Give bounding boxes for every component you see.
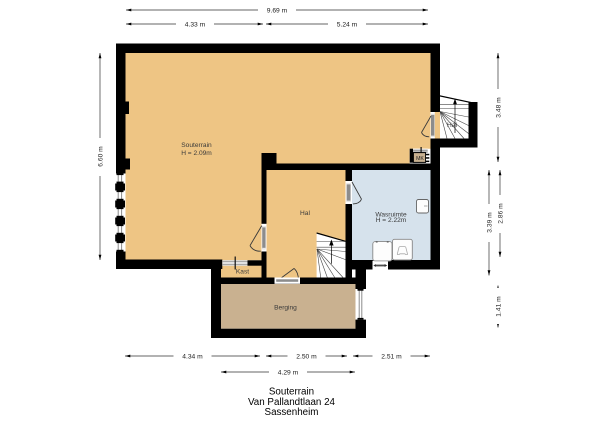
svg-text:3.39 m: 3.39 m [486, 212, 493, 233]
svg-text:9.69 m: 9.69 m [267, 7, 288, 14]
svg-text:Berging: Berging [274, 304, 297, 311]
svg-text:2.51 m: 2.51 m [381, 353, 402, 360]
svg-text:4.34 m: 4.34 m [182, 353, 203, 360]
svg-text:5.24 m: 5.24 m [337, 21, 358, 28]
svg-text:6.60 m: 6.60 m [97, 146, 104, 167]
svg-text:4.33 m: 4.33 m [185, 21, 206, 28]
svg-text:Kast: Kast [236, 269, 249, 276]
svg-text:Souterrain: Souterrain [181, 142, 212, 149]
svg-text:Sassenheim: Sassenheim [265, 407, 319, 418]
svg-text:4.29 m: 4.29 m [278, 369, 299, 376]
svg-text:Hal: Hal [447, 122, 457, 129]
svg-text:2.50 m: 2.50 m [296, 353, 317, 360]
svg-text:H = 2.09m: H = 2.09m [181, 150, 212, 157]
svg-text:1.41 m: 1.41 m [495, 296, 502, 317]
svg-text:3.48 m: 3.48 m [495, 97, 502, 118]
svg-text:2.86 m: 2.86 m [497, 203, 504, 224]
svg-text:Hal: Hal [300, 210, 310, 217]
svg-text:MK: MK [416, 156, 424, 162]
svg-text:Souterrain: Souterrain [269, 386, 314, 397]
svg-text:H = 2.22m: H = 2.22m [376, 217, 407, 224]
